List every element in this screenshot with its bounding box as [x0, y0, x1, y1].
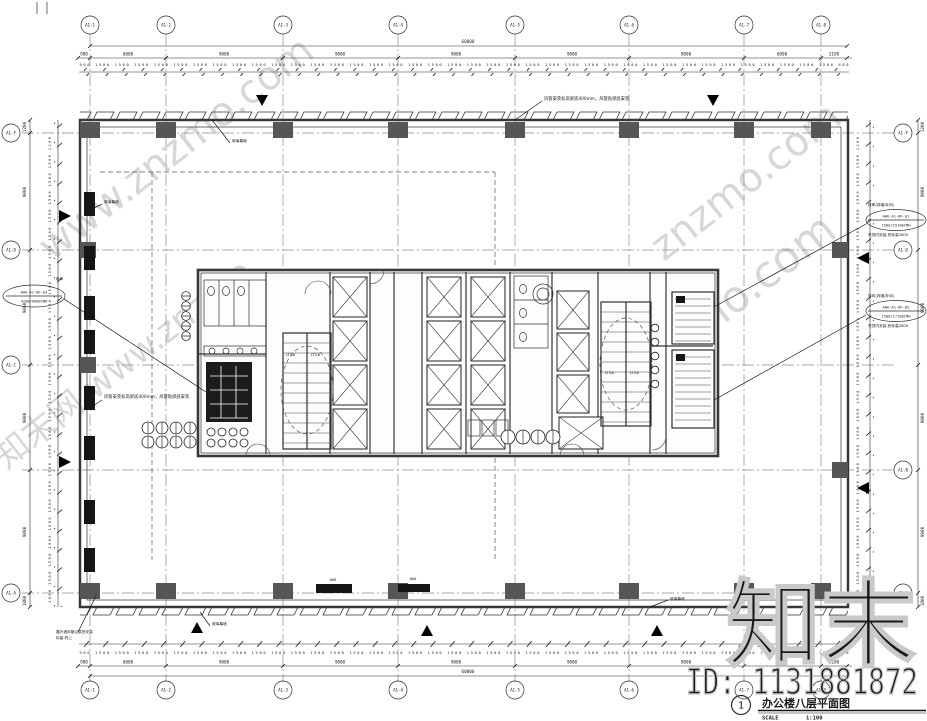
grid-bubble-label: A1-F	[898, 131, 908, 136]
dim-bay: 9000	[219, 52, 230, 58]
ahu-tag-header: 排风(排烟/补风)	[868, 202, 895, 207]
ahu-tag-note: 吊顶内安装 底标高2600	[868, 232, 909, 237]
grid-bubble-label: A1-A	[6, 591, 16, 596]
dim-bay: 900	[80, 52, 88, 58]
dim-vbay: 9000	[22, 526, 28, 537]
grid-bubble-label: A1-1	[85, 688, 95, 693]
site-watermark: 知末 ID: 1131881872	[686, 571, 918, 703]
note-bottom-left-2: 标高:同上	[56, 635, 72, 640]
grid-bubble: A1-3	[274, 16, 292, 34]
dimensions-left: 1200 9000 9000 9000 9000 1800 1800 1500 …	[22, 118, 62, 609]
note-bottom-left-1: 靠外墙风管沿梁底安装	[56, 629, 93, 634]
duct-size-label: 006	[410, 577, 417, 581]
grid-bubble: A1-D	[2, 241, 20, 259]
grid-bubble: A1-2	[157, 16, 175, 34]
grid-bubble-label: A1-5	[510, 23, 520, 28]
grid-bubble: A1-5	[506, 681, 524, 699]
grid-bubbles-left: A1-F A1-D A1-C A1-A	[2, 124, 20, 602]
triangle-marker-up	[651, 625, 663, 636]
grid-bubble: A1-7	[735, 16, 753, 34]
grid-bubble-label: A1-D	[898, 248, 908, 253]
dim-vbay: 9000	[22, 302, 28, 313]
dim-bay: 9000	[681, 52, 692, 58]
grid-bubble-label: A1-8	[816, 23, 826, 28]
grid-bubble-label: A1-2	[161, 23, 171, 28]
dim-vbay: 9000	[920, 526, 926, 537]
curtain-wall-tag: 玻璃幕墙	[104, 199, 119, 204]
curtain-wall-tag: 玻璃幕墙	[232, 138, 247, 143]
dim-bay: 9000	[451, 52, 462, 58]
dimensions-right: 1200 9000 9000 9000 9000 1800 1800 1500 …	[856, 118, 926, 609]
dim-vbay: 9000	[22, 186, 28, 197]
curtain-wall-tag: 玻璃幕墙	[670, 596, 685, 601]
duct-note-top: 风管安装标高梁底400mm，风管贴梁底安装	[544, 95, 630, 102]
grid-bubble: A1-2	[157, 681, 175, 699]
grid-bubble-label: A1-7	[739, 23, 749, 28]
dim-bay: 9000	[451, 660, 462, 666]
ahu-tag-flow: 1500/17100CMH	[882, 315, 911, 319]
triangle-marker-up	[191, 622, 203, 633]
grid-bubble: A1-D	[894, 241, 912, 259]
dimensions-top: 60000 900 6000 9000 9000 9000 9000 9000 …	[76, 39, 852, 76]
grid-bubble: A1-8	[812, 16, 830, 34]
grid-bubble: A1-F	[2, 124, 20, 142]
grid-bubble: A1-4	[389, 681, 407, 699]
dim-modules-top: 900 1500 1500 1500 1500 1500 1500 1500 1…	[80, 63, 849, 67]
grid-bubble-label: A1-2	[161, 688, 171, 693]
dim-bay: 6000	[123, 660, 134, 666]
detail-number: 1	[738, 701, 744, 712]
grid-bubble: A1-B	[894, 461, 912, 479]
grid-bubble-label: A1-4	[393, 23, 403, 28]
grid-bubbles-top: A1-1 A1-2 A1-3 A1-4 A1-5 A1-6 A1-7 A1-8	[81, 16, 830, 34]
dim-bay: 6000	[777, 52, 788, 58]
dim-vbay: 9000	[22, 412, 28, 423]
grid-bubble: A1-C	[2, 356, 20, 374]
drawing-title: 办公楼八层平面图	[762, 696, 850, 710]
blueprint-drawing: www.znzmo.com 知末网 www.znzmo www.znzmo.co…	[0, 0, 927, 721]
grid-bubble-label: A1-1	[85, 23, 95, 28]
dim-bay: 9000	[567, 52, 578, 58]
dim-bay: 9000	[335, 660, 346, 666]
ahu-tag-name: AHU-A1-8F-02	[883, 306, 910, 310]
grid-bubble: A1-6	[620, 681, 638, 699]
diffuser-cluster-left	[142, 422, 196, 448]
ahu-tag-name: AHU-A1-8F-01	[883, 215, 910, 219]
stair-label: LT2#	[630, 371, 639, 375]
floor-plan-sheet: www.znzmo.com 知末网 www.znzmo www.znzmo.co…	[0, 0, 927, 721]
grid-bubble-label: A1-4	[393, 688, 403, 693]
stair-label: LT3#	[286, 353, 295, 357]
duct-note-left: 风管安装标高梁底400mm，风管贴梁底安装	[104, 393, 190, 400]
dim-bay: 9000	[567, 660, 578, 666]
grid-bubble-label: A1-6	[624, 23, 634, 28]
grid-bubble-label: A1-3	[278, 23, 288, 28]
grid-bubbles-right: A1-F A1-D A1-B A1-A	[894, 124, 912, 602]
triangle-marker-down	[707, 95, 719, 106]
dim-modules-left: 1800 1500 1500 1500 1500 1500 1500 1500 …	[48, 137, 52, 603]
triangle-marker-up	[421, 625, 433, 636]
dim-vbay: 1200	[920, 121, 926, 132]
dim-vbay: 1800	[920, 595, 926, 606]
ahu-tag-header: 排风(排烟/补风)	[868, 293, 895, 298]
dim-bay: 9000	[335, 52, 346, 58]
dim-vbay: 9000	[920, 412, 926, 423]
dim-overall-bottom: 60000	[462, 669, 475, 675]
stair-label: LT3#	[605, 371, 614, 375]
dim-vbay: 9000	[920, 186, 926, 197]
curtain-wall-tag: 玻璃幕墙	[212, 621, 227, 626]
grid-bubble: A1-A	[2, 584, 20, 602]
grid-bubble: A1-6	[620, 16, 638, 34]
grid-bubble: A1-3	[274, 681, 292, 699]
ahu-tag-header: 新风	[56, 276, 64, 281]
dim-bay: 2100	[829, 52, 840, 58]
grid-bubble: A1-4	[389, 16, 407, 34]
grid-bubble: A1-F	[894, 124, 912, 142]
grid-bubble: A1-1	[81, 681, 99, 699]
grid-bubble-label: A1-F	[6, 131, 16, 136]
dim-modules-right: 1800 1500 1500 1500 1500 1500 1500 1500 …	[856, 137, 860, 603]
dim-bay: 6000	[123, 52, 134, 58]
ahu-tag-flow: 4200/9000CMH	[21, 300, 48, 304]
dim-bay: 900	[80, 660, 88, 666]
grid-bubble-label: A1-6	[624, 688, 634, 693]
grid-bubble: A1-5	[506, 16, 524, 34]
grid-bubble: A1-1	[81, 16, 99, 34]
dim-vbay: 1800	[22, 595, 28, 606]
grid-bubble-label: A1-D	[6, 248, 16, 253]
dim-bay: 9000	[219, 660, 230, 666]
service-core: LT3# LT2# LT3# LT2#	[198, 270, 718, 456]
grid-bubble-label: A1-3	[278, 688, 288, 693]
stair-label: LT2#	[311, 353, 320, 357]
duct-size-label: 006	[330, 578, 337, 582]
grid-bubble-label: A1-5	[510, 688, 520, 693]
scale-value: 1:100	[806, 716, 823, 721]
dim-vbay: 1200	[22, 121, 28, 132]
grid-bubble-label: A1-B	[898, 468, 908, 473]
ahu-tag-note: 吊顶内安装 底标高2600	[868, 323, 909, 328]
ahu-tag-name: AHU-A1-8F-03	[21, 291, 48, 295]
ahu-tag-flow: 1500/15100CMH	[882, 224, 911, 228]
triangle-marker-right	[59, 456, 71, 468]
dim-overall-top: 60000	[462, 39, 475, 45]
tag-circle-column	[182, 292, 191, 341]
grid-bubble-label: A1-C	[6, 363, 16, 368]
scale-label: SCALE	[762, 716, 779, 721]
